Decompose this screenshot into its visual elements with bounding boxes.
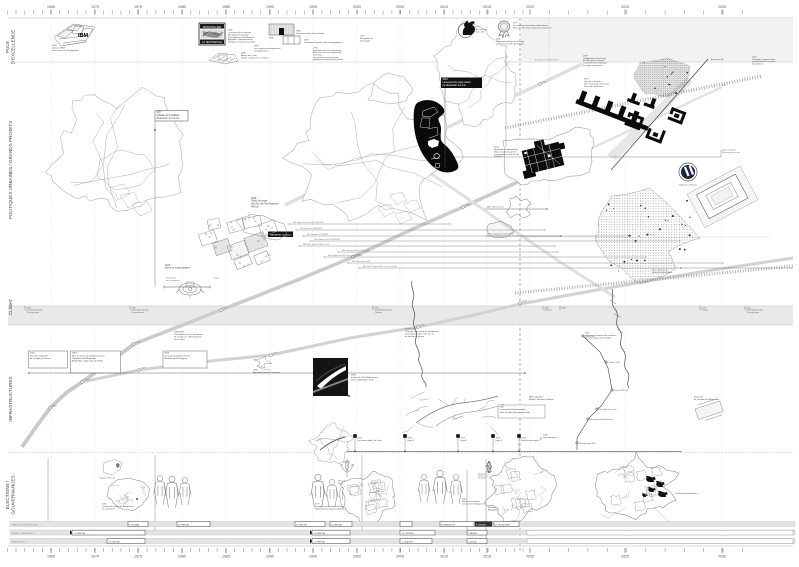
svg-text:1985: 1985 [222,5,230,9]
svg-text:Montpellier - Saint Jean de Ve: Montpellier - Saint Jean de Vedas [72,360,103,363]
svg-text:INFRASTRUCTURES: INFRASTRUCTURES [8,376,13,421]
svg-text:2 heures terres: 2 heures terres [747,311,760,314]
svg-text:12 communes: 12 communes [102,509,115,511]
svg-text:1990: 1990 [266,555,274,559]
svg-text:G. FRECHE: G. FRECHE [74,533,86,535]
svg-text:ZAC Millenaire 1988/1996: ZAC Millenaire 1988/1996 [300,227,322,230]
svg-text:mer a urbaniser: mer a urbaniser [166,280,180,282]
svg-text:1965: 1965 [52,406,58,408]
svg-text:de l'aeroport de Montpellier: de l'aeroport de Montpellier [694,398,719,401]
svg-text:ZAC Republique 2007: ZAC Republique 2007 [352,260,371,263]
svg-text:de Orange au Palinas: de Orange au Palinas [30,357,50,360]
svg-text:de Montpellier a la mer: de Montpellier a la mer [443,84,467,87]
svg-text:Paris - Montpellier en 3h: Paris - Montpellier en 3h [351,379,374,382]
svg-text:Technopole: Technopole [360,40,371,42]
svg-text:Ligne 3: Ligne 3 [461,440,468,442]
svg-text:Montpellier Sud-de-France: Montpellier Sud-de-France [591,418,613,421]
svg-text:TER: TER [722,85,727,87]
svg-text:2010: 2010 [440,5,448,9]
svg-text:G. FRECHE: G. FRECHE [331,524,343,526]
svg-text:Programme Grands Travaux photo: Programme Grands Travaux photographies [304,41,342,44]
svg-text:1977: 1977 [273,353,279,355]
svg-text:d'extension vers la mer: d'extension vers la mer [157,117,180,120]
svg-text:2020: 2020 [526,555,534,559]
svg-text:CLIMAT: CLIMAT [8,299,13,316]
svg-text:ZAC Pont Trinquat 2011 a venir: ZAC Pont Trinquat 2011 a venir 01/2030 [363,265,397,268]
svg-text:LA TECHNOPOLE: LA TECHNOPOLE [202,41,222,44]
svg-text:Ligne 4: Ligne 4 [496,440,503,442]
svg-text:G. FRECHE: G. FRECHE [314,541,326,543]
svg-text:1970: 1970 [91,5,99,9]
svg-text:1977: 1977 [157,112,163,114]
svg-text:arrivee d'IBM: arrivee d'IBM [52,46,65,49]
svg-text:Place de l'urbanisme: Place de l'urbanisme [584,85,604,88]
svg-text:2 heures terres: 2 heures terres [132,311,145,314]
svg-text:Heliopolis. Industries nouvell: Heliopolis. Industries nouvelles [228,41,255,44]
svg-text:Sous les gares Montpellier Sud: Sous les gares Montpellier Sud [500,411,530,414]
svg-text:montpellieraines: montpellieraines [254,49,269,52]
svg-text:ZAC approche du combe 1987/200: ZAC approche du combe 1987/2001 [293,221,323,224]
svg-text:Rocheterre et Perpignan: Rocheterre et Perpignan [165,357,188,360]
svg-text:1970: 1970 [91,555,99,559]
svg-text:Lancement de Euromobilite: Lancement de Euromobilite [500,408,527,411]
svg-text:G. FRECHE: G. FRECHE [296,524,308,526]
svg-text:G. FRECHE: G. FRECHE [314,533,326,535]
svg-text:PRESIDENTS: PRESIDENTS [12,542,25,544]
svg-text:Gare 2008: Gare 2008 [586,335,595,338]
svg-text:ZAC Ode a la mer: ZAC Ode a la mer [487,206,504,209]
svg-text:F. DELMAS: F. DELMAS [129,523,140,526]
svg-text:extension ligne 1: extension ligne 1 [543,436,559,439]
svg-text:2015: 2015 [483,555,491,559]
svg-text:D. CRAUSTE: D. CRAUSTE [402,540,414,543]
svg-text:Securite Lange JM: Securite Lange JM [30,354,48,357]
svg-text:1980: 1980 [178,5,186,9]
svg-text:2030: 2030 [718,555,726,559]
svg-text:pole la moins vieille de l'Eur: pole la moins vieille de l'Europe [496,43,525,45]
svg-text:2007: 2007 [500,406,506,408]
svg-text:Agrandissement de l'aeroport: Agrandissement de l'aeroport [253,371,281,374]
svg-text:1975: 1975 [134,5,142,9]
svg-text:Mise en service du premier tro: Mise en service du premier troncon [72,354,105,357]
svg-text:Loi Metropole Montpellier: Loi Metropole Montpellier [675,492,698,495]
svg-text:records: records [702,309,708,312]
svg-text:Autoroute A9: Autoroute A9 [711,58,724,61]
svg-text:P. SAUREL: P. SAUREL [476,523,487,526]
svg-text:Sablons TER: Sablons TER [609,362,621,364]
svg-text:2003: 2003 [443,79,449,81]
svg-text:l'Ecusson de la mer: l'Ecusson de la mer [722,151,740,154]
svg-text:2008: 2008 [522,301,528,303]
svg-text:IBM: IBM [78,33,89,39]
svg-text:Lancement du projet Grand: Lancement du projet Grand [443,81,472,84]
svg-text:1968: 1968 [84,380,90,382]
svg-text:1985: 1985 [222,555,230,559]
svg-text:2030: 2030 [718,5,726,9]
svg-text:MONTPELLIER: MONTPELLIER [203,25,221,29]
svg-text:1975: 1975 [134,555,142,559]
svg-text:infrastructure-territoire: infrastructure-territoire [652,271,673,274]
svg-text:1992: 1992 [465,205,471,207]
svg-text:1990: 1990 [266,5,274,9]
svg-text:2025: 2025 [621,5,629,9]
svg-text:POLE: POLE [5,41,10,53]
svg-text:Lancement ligne 1 du Tram: Lancement ligne 1 du Tram [358,439,383,442]
svg-text:ELECTIONS /: ELECTIONS / [5,480,10,509]
svg-text:Idees du projet integree: Idees du projet integree [165,267,191,270]
svg-text:2 heures terres: 2 heures terres [27,311,40,314]
svg-text:Tech. d'Or: Tech. d'Or [475,31,484,33]
svg-text:Initiation de la politique: Initiation de la politique [157,114,181,117]
svg-text:Appel de l'Herault: Appel de l'Herault [100,477,115,480]
svg-text:“Revolution de Montpellier”: “Revolution de Montpellier” [72,357,97,360]
svg-text:J.P. MOURE: J.P. MOURE [402,533,414,535]
svg-text:MAIRES DE MONTPELLIER: MAIRES DE MONTPELLIER [12,524,38,527]
svg-text:ZAC Consuls de Mer 1992/2008: ZAC Consuls de Mer 1992/2008 [342,249,369,252]
svg-text:Livraison du dernier troncon: Livraison du dernier troncon [165,354,192,357]
svg-text:2005: 2005 [396,5,404,9]
svg-text:1970: 1970 [136,342,142,344]
svg-text:POLITIQUES URBAINES / GRANDS P: POLITIQUES URBAINES / GRANDS PROJETS [8,121,13,219]
svg-text:Emergence et deploiement: Emergence et deploiement [535,59,559,62]
svg-text:ZAC Jaques Coeur 1994/2008: ZAC Jaques Coeur 1994/2008 [314,238,340,241]
svg-text:1995: 1995 [309,5,317,9]
svg-text:Ligne 2: Ligne 2 [408,440,415,442]
svg-text:L'inauguration du Corum Berlio: L'inauguration du Corum Berlioz [296,32,325,35]
svg-text:2010: 2010 [440,555,448,559]
svg-text:1965: 1965 [47,5,55,9]
svg-text:1990: 1990 [420,325,426,327]
svg-text:P. SAUREL: P. SAUREL [468,532,477,535]
svg-text:50000 m2: 50000 m2 [494,156,504,158]
svg-text:2 heures: 2 heures [375,311,382,314]
svg-text:2000: 2000 [353,555,361,559]
svg-text:Metropole: Metropole [478,476,486,479]
svg-text:Gares TER 2,5k: Gares TER 2,5k [615,389,629,392]
svg-text:H. MANDROUX: H. MANDROUX [441,523,456,526]
svg-text:d'excellence: d'excellence [752,64,764,66]
svg-text:2014: 2014 [542,82,548,84]
svg-text:2025: 2025 [621,555,629,559]
svg-text:Bellfort, Sabrieres, Magere: Bellfort, Sabrieres, Magere [529,398,555,401]
svg-text:Pont Marianne Gare: Pont Marianne Gare [600,408,617,411]
svg-text:G. FRECHE: G. FRECHE [178,524,190,526]
svg-text:1965: 1965 [47,555,55,559]
svg-text:MARIANNE 2000/2010: MARIANNE 2000/2010 [270,234,292,237]
svg-text:400 ha: 400 ha [251,205,259,208]
svg-text:1980: 1980 [178,555,186,559]
svg-text:sur la zone de Pompignane: sur la zone de Pompignane [52,49,79,52]
svg-text:1995: 1995 [309,555,317,559]
svg-text:debut travaux ligne 5: debut travaux ligne 5 [522,439,541,442]
svg-text:2000: 2000 [353,5,361,9]
svg-text:ZAC Hippocrate 1995. A venir s: ZAC Hippocrate 1995. A venir suite 2009 [328,254,362,257]
svg-text:AGGLO - PRESIDENTS: AGGLO - PRESIDENTS [12,532,34,535]
svg-text:2020: 2020 [526,5,534,9]
svg-text:2008: 2008 [562,308,566,310]
svg-text:1975: 1975 [223,308,229,310]
svg-text:ZAC Rive Gauche 1999 a venir: ZAC Rive Gauche 1999 a venir [303,243,330,246]
svg-text:vers le Sud: vers le Sud [174,338,185,341]
svg-text:Nouvelle gare TER: Nouvelle gare TER [580,442,597,445]
svg-text:ZAC Antigone 1978/2000: ZAC Antigone 1978/2000 [307,233,328,236]
svg-text:1970: 1970 [141,368,147,370]
svg-text:GOUVERNANCES: GOUVERNANCES [11,475,16,514]
svg-text:Recrutes Ville Jeune toujours: Recrutes Ville Jeune toujours recompense… [513,26,553,29]
svg-text:2005: 2005 [396,555,404,559]
svg-text:Stade de la Mosson: Stade de la Mosson [679,184,697,187]
svg-text:2015: 2015 [483,5,491,9]
svg-text:modernite architecturale regio: modernite architecturale regionale [313,58,344,61]
svg-text:C. DELGA: C. DELGA [468,540,477,543]
svg-text:en aval de la Javane: en aval de la Javane [405,336,425,338]
svg-text:Berlioz architecture et musiqu: Berlioz architecture et musique [241,56,269,59]
svg-text:D’EXCELLENCE: D’EXCELLENCE [11,30,16,65]
svg-text:2e vague d'innovation: 2e vague d'innovation [583,64,602,67]
svg-text:G. FRECHE: G. FRECHE [109,541,121,543]
svg-text:canicule: canicule [545,310,552,312]
svg-text:M. DELAFOSSE: M. DELAFOSSE [495,523,510,526]
